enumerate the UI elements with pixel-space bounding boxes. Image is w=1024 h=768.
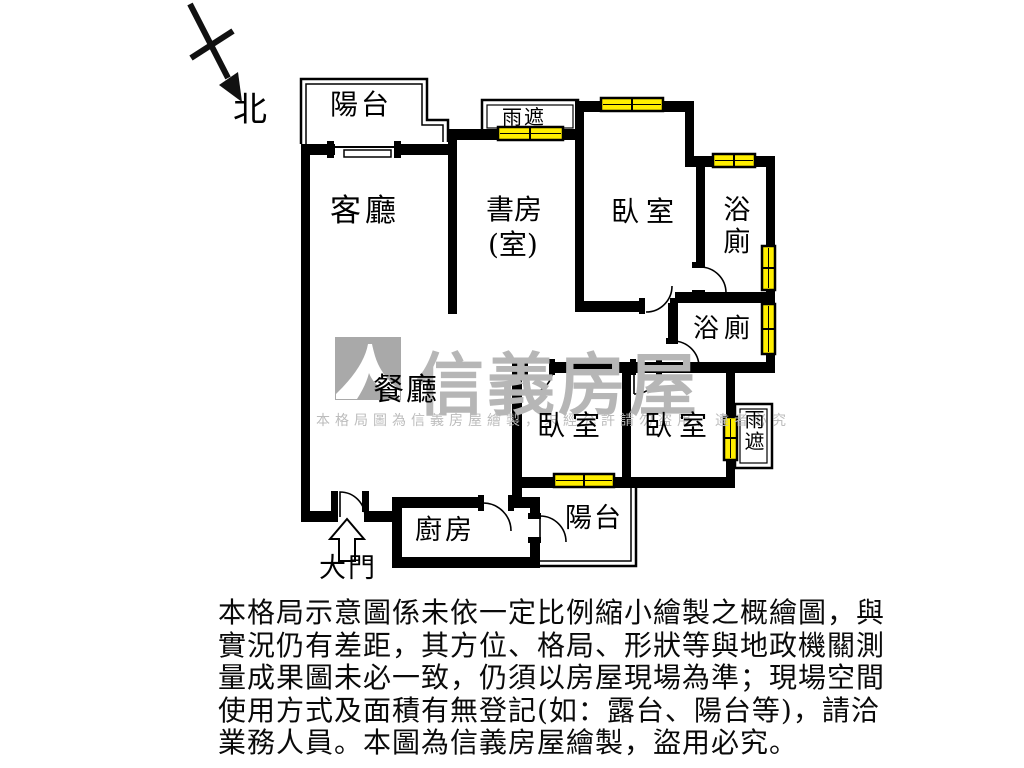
disclaimer-text: 本格局示意圖係未依一定比例縮小繪製之概繪圖，與 實況仍有差距，其方位、格局、形狀… [218,597,885,760]
label-study-line1: 書房 [486,195,542,224]
label-living-room: 客廳 [330,195,400,228]
label-bathroom-mid: 浴廁 [693,316,755,343]
label-rain-shelter-right: 雨遮 [742,409,763,453]
label-bathroom-top: 浴廁 [719,195,747,259]
disclaimer-line: 業務人員。本圖為信義房屋繪製，盜用必究。 [218,727,885,760]
disclaimer-line: 本格局示意圖係未依一定比例縮小繪製之概繪圖，與 [218,597,885,630]
disclaimer-line: 使用方式及面積有無登記(如：露台、陽台等)，請洽 [218,695,885,728]
sliding-door [334,147,397,157]
label-kitchen: 廚房 [415,517,475,545]
north-arrow-icon [190,4,242,102]
label-bedroom-top: 臥室 [611,197,681,226]
label-north: 北 [233,93,267,129]
label-balcony-bottom: 陽台 [565,505,623,533]
label-study-line2: (室) [488,230,538,259]
label-rain-shelter-top: 雨遮 [502,107,546,128]
floorplan-page: 信義房屋 本格局圖為信義房屋繪製，未經允許請勿盜用，違者必究 陽台 客廳 書房 … [0,0,1024,768]
label-bedroom-bottom-left: 臥室 [537,411,607,440]
disclaimer-line: 量成果圖未必一致，仍須以房屋現場為準；現場空間 [218,662,885,695]
disclaimer-line: 實況仍有差距，其方位、格局、形狀等與地政機關測 [218,630,885,663]
label-entrance: 大門 [319,555,377,583]
label-dining-room: 餐廳 [373,374,439,407]
label-balcony-top: 陽台 [330,90,392,119]
label-bedroom-bottom-right: 臥室 [644,411,714,440]
